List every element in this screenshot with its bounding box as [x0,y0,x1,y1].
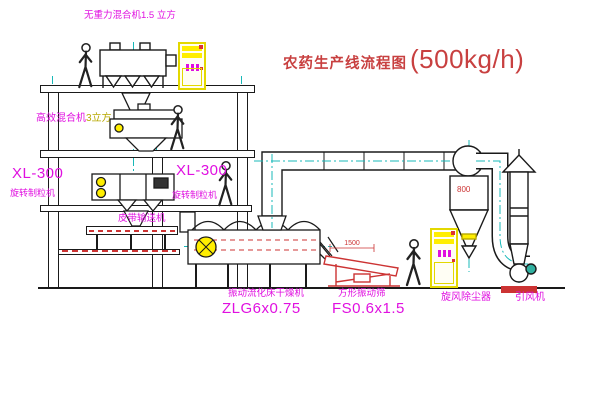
gravity-free-mixer [96,38,180,94]
flow-diagram-canvas: 800 1500 [0,0,600,403]
label-dryer-name: 振动流化床干燥机 [228,289,304,299]
fan-housing [510,264,528,282]
fan-motor [526,264,536,274]
mixer-discharge-funnels [106,76,159,87]
cyclone-diameter-dim: 800 [457,185,471,194]
label-granulator-left-model: XL-300 [12,166,63,181]
person-ground [402,238,426,288]
cabinet-indicator-lamp [199,45,203,49]
label-sieve-model: FS0.6x1.5 [332,301,405,316]
label-cyclone: 旋风除尘器 [441,293,491,303]
mixer2-discharge-cone [126,138,166,151]
title-capacity: (500kg/h) [410,44,524,75]
rotary-granulator [88,166,182,214]
mixer2-motor [115,124,123,132]
label-granulator-right-model: XL-300 [176,163,227,178]
cabinet-panel-band [434,239,454,244]
cabinet-door [434,262,454,284]
person-roof [74,42,98,90]
stack-bottom-cone [510,244,528,264]
person-body [171,114,183,150]
cabinet-door [182,68,202,86]
mixer-body [100,50,166,76]
mixer-top-port [110,43,120,50]
mixer-top-port [140,43,150,50]
label-belt-conveyor: 皮带输送机 [118,214,166,224]
control-cabinet-top [178,42,206,90]
label-mixer-name: 高效混合机 [36,113,86,124]
belt-surface [89,230,175,232]
label-fan: 引风机 [515,293,545,303]
dryer-legs [196,264,306,287]
sieve-length-dim: 1500 [344,240,360,247]
cabinet-indicator-lamp [451,231,455,235]
granulator-motor [97,178,106,187]
person-body [407,248,420,285]
sieve-vibration-motor [354,274,370,282]
mixer-motor [166,55,176,66]
platform-red-hatch [62,250,176,252]
label-granulator-right-name: 旋转制粒机 [172,191,217,200]
label-high-efficiency-mixer: 高效混合机3立方 [36,114,112,124]
label-granulator-left-name: 旋转制粒机 [10,189,55,198]
label-dryer-model: ZLG6x0.75 [222,301,301,316]
conveyor-leg [130,235,132,249]
label-sieve-name: 方形振动筛 [338,289,386,299]
belt-conveyor [86,226,178,235]
drawing-title: 农药生产线流程图 (500kg/h) [283,44,524,75]
cabinet-knobs [432,250,456,257]
person-second-floor [166,104,190,152]
mixer2-inlet-stub [138,104,150,110]
person-body [79,52,91,88]
label-gravity-free-mixer: 无重力混合机1.5 立方 [84,11,176,21]
conveyor-leg [164,235,166,249]
title-text: 农药生产线流程图 [283,52,407,73]
fan-and-stack-assembly [470,136,600,298]
granulator-drive-block [154,178,168,188]
control-cabinet-ground [430,228,458,288]
label-mixer-spec: 3立方 [86,113,112,124]
conveyor-leg [96,235,98,249]
cabinet-panel-band [182,53,202,58]
sieve-deck [324,256,398,276]
granulator-motor [97,189,106,198]
sieve-feed-chute [320,237,338,256]
square-vibrating-sieve: 1500 [318,234,410,290]
